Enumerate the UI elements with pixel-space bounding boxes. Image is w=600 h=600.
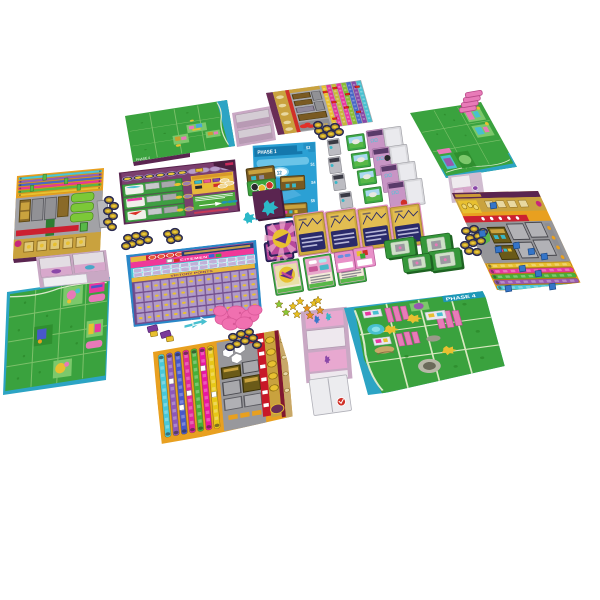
- svg-text:ΩΩ: ΩΩ: [384, 172, 392, 179]
- svg-text:12: 12: [277, 170, 282, 177]
- svg-text:ΩΩ: ΩΩ: [376, 155, 384, 162]
- svg-text:ΩΩ: ΩΩ: [391, 189, 399, 196]
- svg-text:S2: S2: [306, 146, 310, 151]
- svg-text:ΩΩ: ΩΩ: [370, 137, 378, 144]
